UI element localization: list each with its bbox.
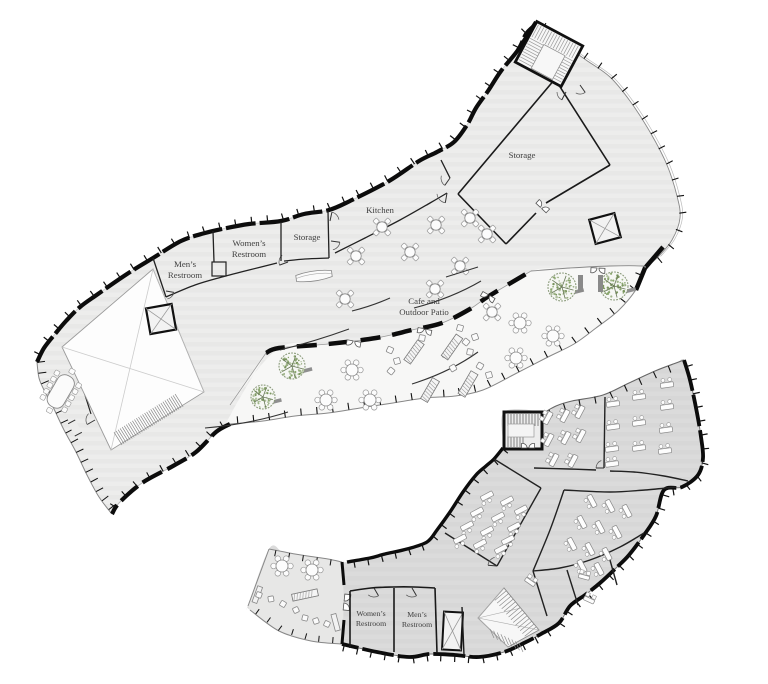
svg-text:Women’sRestroom: Women’sRestroom (232, 238, 266, 259)
svg-text:Storage: Storage (509, 150, 536, 160)
svg-text:Women’sRestroom: Women’sRestroom (356, 609, 386, 628)
svg-text:Storage: Storage (294, 232, 321, 242)
svg-text:Kitchen: Kitchen (366, 205, 394, 215)
